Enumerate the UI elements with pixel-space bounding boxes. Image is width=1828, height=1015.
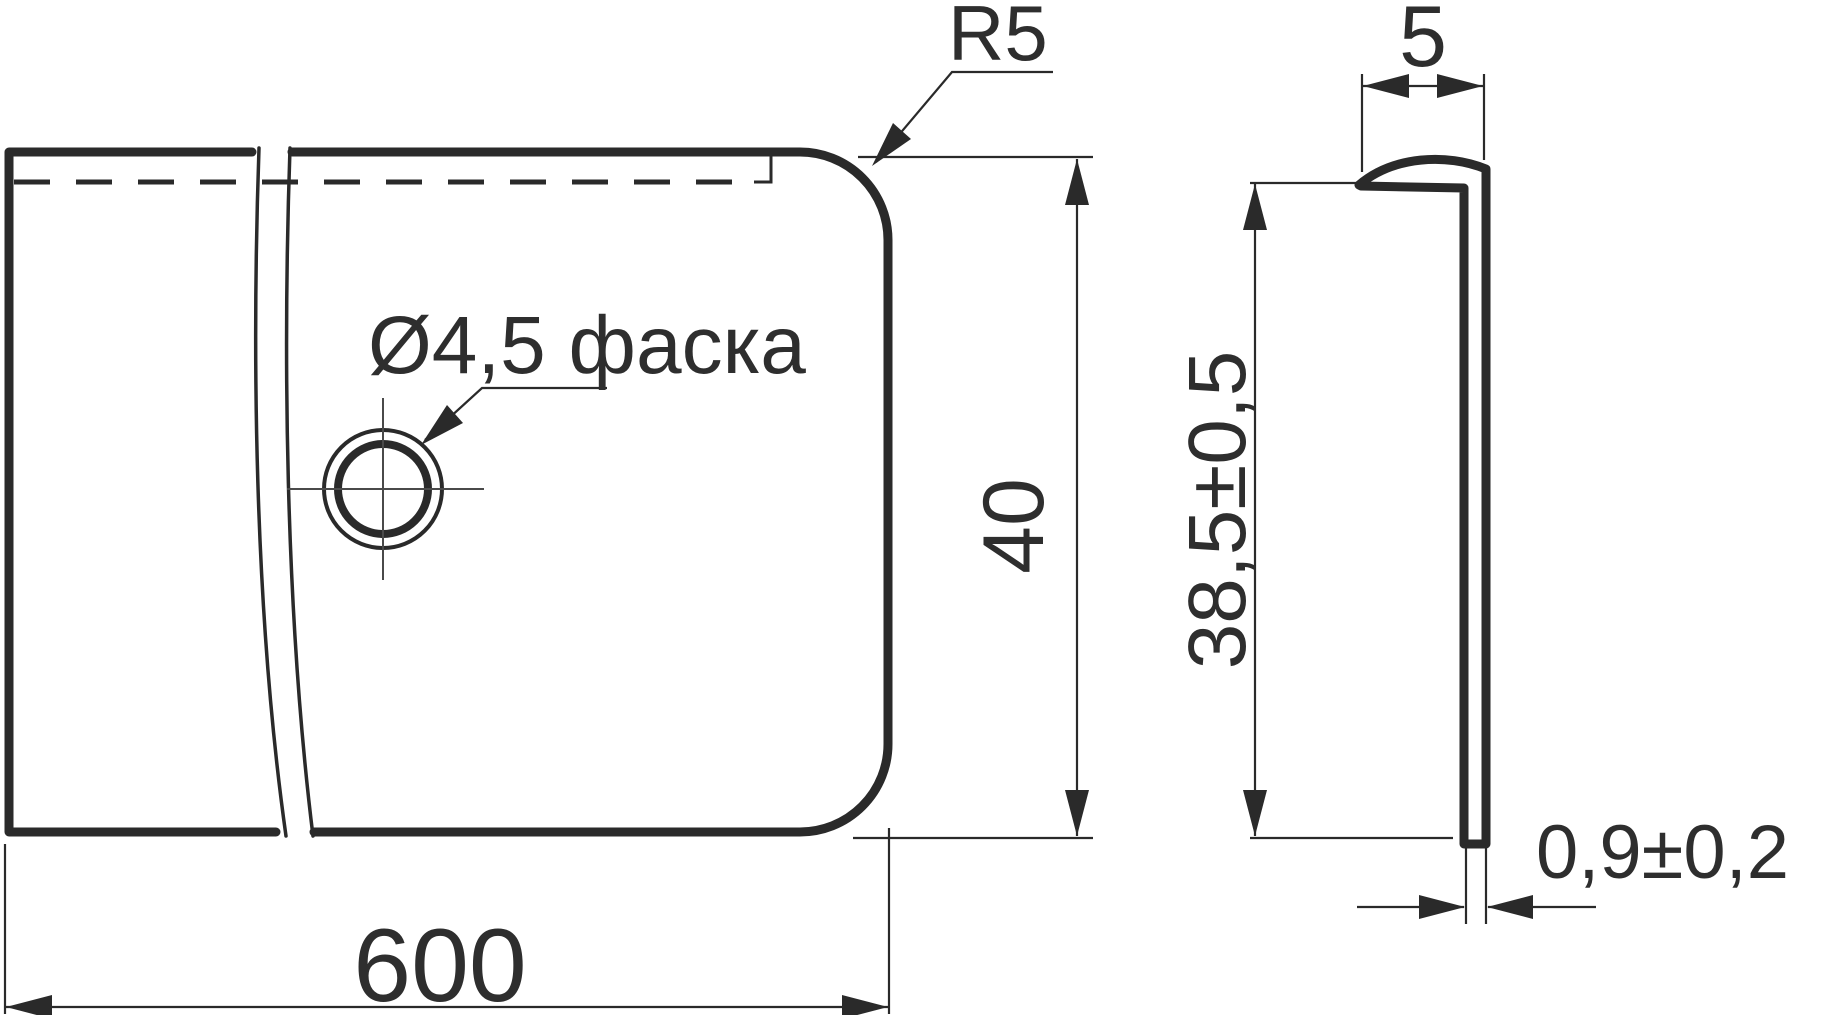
technical-drawing-canvas: Ø4,5 фаска R5 40 600 xyxy=(0,0,1828,1015)
radius-leader-arrow xyxy=(872,123,911,166)
dim-385-arrow-top xyxy=(1243,184,1267,230)
plate-outline-right xyxy=(292,152,888,832)
break-line-left xyxy=(256,148,286,836)
dim-385-arrow-bottom xyxy=(1243,790,1267,836)
dim-600-arrow-right xyxy=(842,995,888,1015)
dim-600-label: 600 xyxy=(353,908,527,1015)
side-view: 5 38,5±0,5 0,9±0,2 xyxy=(1172,0,1789,924)
plate-outline-left xyxy=(9,152,276,832)
dim-5-label: 5 xyxy=(1399,0,1447,85)
hole-callout-label: Ø4,5 фаска xyxy=(368,300,806,391)
dim-09-label: 0,9±0,2 xyxy=(1536,810,1789,895)
radius-label: R5 xyxy=(948,0,1048,77)
dim-40-label: 40 xyxy=(966,478,1062,574)
dim-600-arrow-left xyxy=(6,995,52,1015)
flange-end-tick xyxy=(754,154,771,182)
front-view: Ø4,5 фаска R5 40 600 xyxy=(5,0,1093,1015)
dim-40-arrow-top xyxy=(1065,159,1089,205)
drawing-svg: Ø4,5 фаска R5 40 600 xyxy=(0,0,1828,1015)
radius-leader-line xyxy=(876,72,1053,162)
side-profile-outline xyxy=(1359,159,1486,844)
break-line-right xyxy=(287,148,313,836)
dim-09-arrow-right xyxy=(1487,895,1533,919)
dim-40-arrow-bottom xyxy=(1065,790,1089,836)
dim-385-label: 38,5±0,5 xyxy=(1172,351,1263,670)
dim-09-arrow-left xyxy=(1419,895,1465,919)
